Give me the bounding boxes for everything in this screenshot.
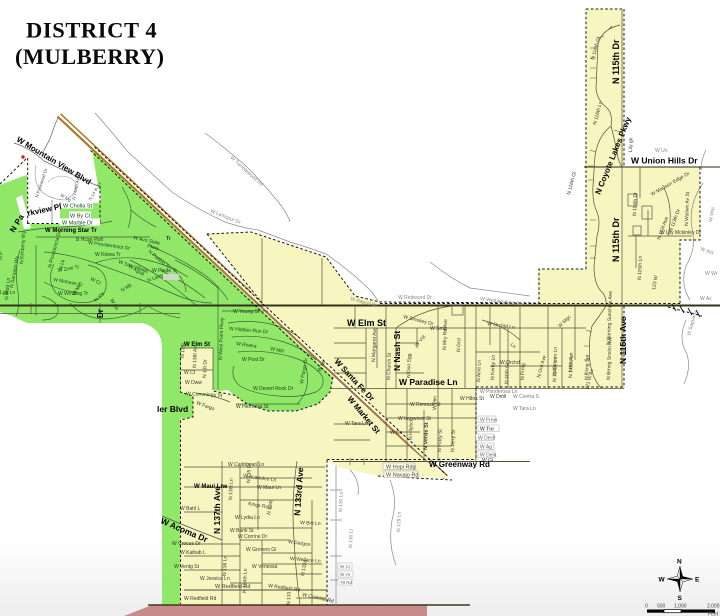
svg-text:W Orchd: W Orchd — [500, 360, 520, 366]
svg-text:ler Blvd: ler Blvd — [157, 404, 188, 414]
svg-text:W Tnr: W Tnr — [480, 427, 494, 433]
svg-text:W Dww: W Dww — [185, 380, 202, 386]
svg-text:N Verde St: N Verde St — [423, 422, 430, 450]
svg-text:N 115th Ave: N 115th Ave — [618, 316, 628, 364]
svg-text:N 138t Av: N 138t Av — [192, 346, 199, 368]
svg-text:W Kaibab L: W Kaibab L — [180, 550, 206, 556]
svg-text:W Ag: W Ag — [480, 445, 492, 451]
svg-text:2,000: 2,000 — [707, 604, 720, 610]
svg-text:W Morning Star Tr: W Morning Star Tr — [45, 228, 97, 234]
svg-text:0: 0 — [645, 604, 648, 610]
svg-text:W Greenway Rd: W Greenway Rd — [429, 460, 490, 469]
svg-text:N 115th Dr: N 115th Dr — [611, 39, 621, 84]
svg-text:W Redfield Rd: W Redfield Rd — [215, 584, 250, 590]
svg-text:N Dsrt Sgg: N Dsrt Sgg — [406, 353, 413, 378]
svg-text:W Hm: W Hm — [432, 396, 438, 410]
svg-text:W Tara Ln: W Tara Ln — [513, 406, 536, 412]
svg-text:N: N — [677, 559, 682, 566]
svg-text:W Ct: W Ct — [184, 370, 196, 376]
svg-text:W Hopi Rdg: W Hopi Rdg — [386, 465, 416, 471]
svg-text:N Acre Ln: N Acre Ln — [476, 360, 483, 382]
svg-text:W By Ct: W By Ct — [70, 214, 91, 220]
svg-text:N Wstlwn Av St: N Wstlwn Av St — [684, 191, 691, 226]
svg-text:N Church St: N Church St — [386, 352, 393, 380]
svg-text:W Navajo Rd: W Navajo Rd — [386, 473, 418, 479]
svg-text:N Jerry St: N Jerry St — [450, 429, 457, 452]
svg-text:W Grovers Gl: W Grovers Gl — [246, 547, 276, 553]
svg-text:W Cr: W Cr — [340, 564, 351, 569]
svg-text:W Kiowa Tr: W Kiowa Tr — [95, 252, 121, 258]
svg-text:N Kerby Ln: N Kerby Ln — [490, 355, 497, 380]
svg-text:W Corrine Dr: W Corrine Dr — [238, 534, 268, 540]
svg-text:N 115th Ln: N 115th Ln — [637, 256, 644, 281]
svg-text:W Tara Ln: W Tara Ln — [345, 421, 368, 427]
svg-text:W Cholla St: W Cholla St — [63, 204, 93, 210]
svg-text:N Hllyhck: N Hllyhck — [408, 418, 415, 440]
svg-text:N 137th Ave: N 137th Ave — [212, 486, 222, 534]
svg-text:W Post Dr: W Post Dr — [242, 357, 265, 363]
svg-text:W Ventg St: W Ventg St — [174, 564, 200, 570]
svg-text:W Union Hills Dr: W Union Hills Dr — [631, 156, 698, 166]
svg-text:W Un: W Un — [655, 148, 668, 154]
svg-text:N Nash St: N Nash St — [392, 331, 402, 371]
svg-text:Tr: Tr — [166, 236, 171, 242]
svg-text:W Bnt Ln: W Bnt Ln — [300, 520, 321, 527]
svg-text:Feet: Feet — [708, 612, 719, 616]
svg-text:W Hermosa St: W Hermosa St — [236, 404, 269, 410]
svg-text:W Desert Rock Dr: W Desert Rock Dr — [253, 386, 294, 392]
svg-text:N 114th Dr: N 114th Dr — [632, 192, 639, 216]
svg-text:N Grcl: N Grcl — [456, 338, 462, 352]
svg-text:N 136t Ln: N 136t Ln — [228, 478, 235, 500]
svg-text:N Mry Rd Ave: N Mry Rd Ave — [442, 319, 449, 350]
svg-text:W Ponderosa Ln: W Ponderosa Ln — [480, 389, 517, 395]
svg-text:Lily gh: Lily gh — [628, 137, 635, 152]
svg-text:1,000: 1,000 — [674, 604, 687, 610]
svg-text:W Lydia Ln: W Lydia Ln — [235, 515, 260, 521]
svg-text:W Hr: W Hr — [340, 572, 351, 577]
svg-text:E: E — [695, 577, 700, 584]
svg-text:78 Rd: 78 Rd — [340, 580, 353, 585]
svg-text:W Ac: W Ac — [700, 296, 712, 302]
svg-text:N 13t Dr: N 13t Dr — [202, 359, 209, 378]
svg-text:W Frnw: W Frnw — [480, 418, 498, 424]
svg-text:W: W — [659, 577, 666, 584]
svg-text:N 139t: N 139t — [180, 343, 187, 359]
svg-text:W Gl: W Gl — [482, 458, 493, 464]
svg-text:W Redwood Dr: W Redwood Dr — [398, 295, 432, 301]
svg-text:N 115th Dr: N 115th Dr — [611, 217, 621, 262]
svg-text:W Young St: W Young St — [233, 309, 260, 315]
svg-text:N P: N P — [0, 251, 5, 260]
svg-text:W Maui Lne: W Maui Lne — [194, 484, 228, 490]
svg-text:N 114th Ln: N 114th Ln — [552, 358, 559, 383]
svg-text:W Crocus Dr: W Crocus Dr — [172, 541, 201, 547]
svg-text:N Frntg: N Frntg — [520, 363, 527, 380]
svg-text:DISTRICT 4: DISTRICT 4 — [26, 18, 157, 43]
svg-text:N 136 Ln: N 136 Ln — [222, 555, 229, 576]
svg-text:N 130 Ln: N 130 Ln — [338, 491, 345, 512]
svg-text:(MULBERRY): (MULBERRY) — [15, 44, 164, 69]
svg-text:W Venessa: W Venessa — [252, 564, 278, 570]
svg-text:W Bahl L: W Bahl L — [180, 506, 201, 512]
svg-text:W Redfield Rd: W Redfield Rd — [184, 596, 216, 602]
svg-text:N 135 Dr: N 135 Dr — [246, 463, 253, 484]
svg-text:W Marble Dr: W Marble Dr — [62, 221, 93, 227]
svg-text:N Margaret Ave: N Margaret Ave — [371, 327, 378, 362]
svg-text:N Fckly St: N Fckly St — [437, 428, 444, 452]
svg-text:500: 500 — [657, 604, 666, 610]
svg-text:N 1 6th Av: N 1 6th Av — [568, 354, 575, 378]
svg-text:W Cr: W Cr — [390, 430, 402, 436]
svg-text:N 129 Ln: N 129 Ln — [396, 511, 403, 532]
svg-text:S: S — [678, 595, 683, 602]
svg-text:W Lily Mckinley Dr: W Lily Mckinley Dr — [660, 230, 701, 236]
svg-text:W Paute Tr: W Paute Tr — [152, 268, 177, 274]
svg-text:W Maui Ln: W Maui Ln — [257, 485, 281, 491]
svg-text:W Decll: W Decll — [478, 436, 495, 442]
svg-text:W Elm St: W Elm St — [347, 318, 386, 328]
svg-text:Lgg Ln: Lgg Ln — [0, 290, 16, 296]
svg-text:N 133: N 133 — [286, 591, 292, 605]
svg-text:W Srng: W Srng — [430, 326, 447, 332]
svg-text:Dr: Dr — [96, 309, 105, 318]
svg-text:N 130 Lt: N 130 Lt — [348, 528, 355, 548]
svg-text:W Hlbrk St: W Hlbrk St — [460, 396, 485, 402]
svg-text:W Wr: W Wr — [705, 271, 718, 277]
